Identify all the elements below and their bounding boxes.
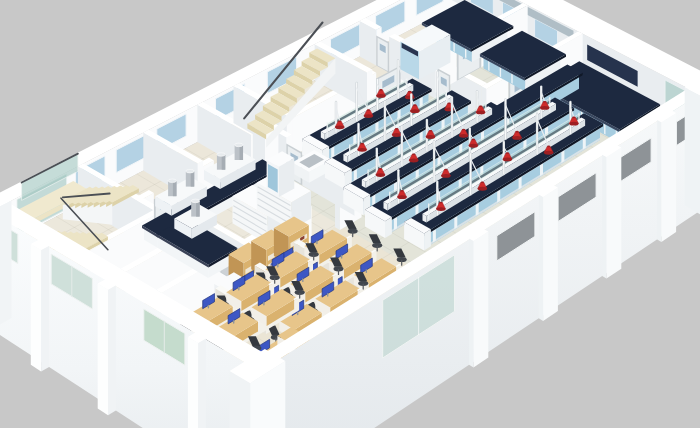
vent-chimney xyxy=(217,153,225,170)
corner-column xyxy=(0,188,12,334)
vent-chimney xyxy=(235,143,243,160)
wall-pilaster xyxy=(657,111,676,242)
vent-chimney xyxy=(191,199,199,216)
floor-plan-render xyxy=(0,0,700,428)
corner-column xyxy=(685,71,700,215)
wall-pilaster xyxy=(31,240,49,372)
wall-pilaster xyxy=(602,145,621,278)
wall-pilaster xyxy=(539,185,558,321)
vent-chimney xyxy=(186,169,194,186)
wall-pilaster xyxy=(98,279,116,415)
wall-pilaster xyxy=(469,229,488,367)
wall-pilaster xyxy=(188,332,206,428)
reagent-cabinet xyxy=(267,151,295,197)
laboratory-floor-plan-svg xyxy=(0,0,700,428)
vent-chimney xyxy=(168,179,176,196)
